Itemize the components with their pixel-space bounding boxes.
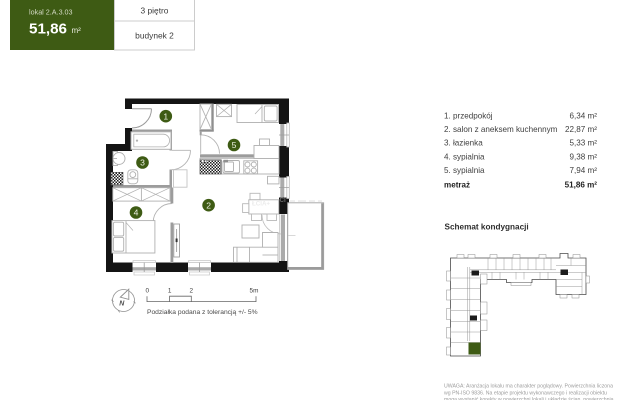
svg-text:2: 2 [206,200,211,210]
svg-text:1: 1 [163,111,168,121]
svg-text:4. sypialnia: 4. sypialnia [444,152,485,161]
svg-text:51,86 m²: 51,86 m² [565,180,598,189]
svg-text:Schemat kondygnacji: Schemat kondygnacji [445,223,529,232]
svg-text:51,86: 51,86 [29,21,67,38]
svg-text:UWAGA: Aranżacja lokalu ma cha: UWAGA: Aranżacja lokalu ma charakter pog… [444,384,613,390]
svg-text:3. łazienka: 3. łazienka [444,139,483,148]
svg-text:budynek 2: budynek 2 [135,31,174,41]
svg-text:5. sypialnia: 5. sypialnia [444,166,485,175]
svg-text:4: 4 [134,208,139,218]
svg-text:6,34 m²: 6,34 m² [570,112,598,121]
svg-text:7,94 m²: 7,94 m² [570,166,598,175]
svg-text:1: 1 [168,288,172,295]
svg-text:wg PN-ISO 9836. Na etapie proj: wg PN-ISO 9836. Na etapie projektu wykon… [444,390,607,396]
svg-text:5,33 m²: 5,33 m² [570,139,598,148]
svg-text:m²: m² [72,26,82,35]
svg-text:3: 3 [140,158,145,168]
svg-text:22,87 m²: 22,87 m² [565,125,597,134]
svg-text:2. salon z aneksem kuchennym: 2. salon z aneksem kuchennym [444,125,558,134]
svg-text:ŁCIA+: ŁCIA+ [252,201,270,208]
svg-text:0: 0 [146,288,150,295]
svg-text:Podziałka podana z tolerancją: Podziałka podana z tolerancją +/- 5% [147,309,258,316]
svg-text:2: 2 [190,288,194,295]
svg-text:metraż: metraż [444,180,470,189]
svg-text:9,38 m²: 9,38 m² [570,152,598,161]
svg-text:CI: CI [280,197,286,204]
svg-text:lokal 2.A.3.03: lokal 2.A.3.03 [29,8,73,17]
svg-text:1. przedpokój: 1. przedpokój [444,112,493,121]
svg-text:5: 5 [232,140,237,150]
svg-text:3 piętro: 3 piętro [141,6,169,16]
svg-text:5m: 5m [250,288,259,295]
